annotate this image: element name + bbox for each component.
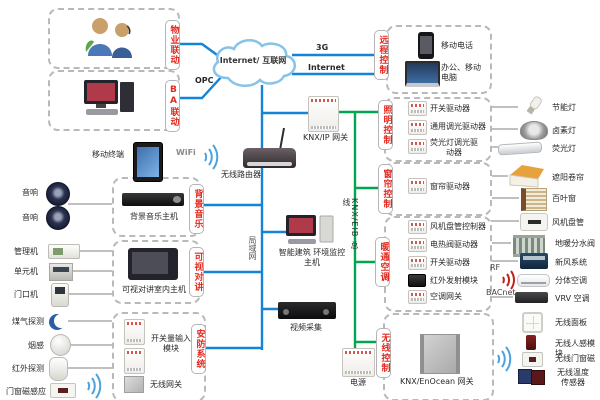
speaker-icon-2 [46,206,70,230]
router-label: 无线路由器 [221,170,261,180]
valve-driver-icon [408,238,427,252]
intercom-tab: 可视对讲 [189,247,204,297]
blinds-icon [521,188,547,211]
tablet-icon [133,142,163,182]
smart-building-knx-diagram: Internet/ 互联网 3G Internet OPC WiFi 局域网 K… [0,0,600,400]
wireless-gw-label: 无线网关 [150,380,182,390]
dimmer-driver-icon [408,120,427,135]
cfl-bulb-icon [519,94,547,120]
mobile-phone-icon [418,32,434,59]
gas-detector-icon [48,312,68,332]
property-linkage-tab: 物业联动 [165,20,180,70]
knx-ip-gateway-label: KNX/IP 网关 [303,133,348,143]
intercom-host-label: 可视对讲室内主机 [114,285,194,295]
speaker-icon-1 [46,182,70,206]
fancoil-controller-label: 风机盘管控制器 [430,222,486,232]
rf-arcs-icon [500,269,516,291]
door-label: 门口机 [14,290,38,300]
wifi-arcs-icon [201,143,219,171]
wireless-panel-icon [522,312,543,333]
lighting-tab: 照明控制 [378,100,393,150]
halogen-label: 卤素灯 [552,126,576,136]
fluorescent-label: 荧光灯 [552,144,576,154]
security-tab: 安防系统 [191,324,206,374]
ir-detector-icon [49,357,68,381]
enocean-gateway-label: KNX/EnOcean 网关 [400,377,474,387]
valve-driver-label: 电热阀驱动器 [430,240,478,250]
ba-computer-icon [78,76,142,122]
input-module-icon-2 [124,348,145,374]
fluorescent-driver-icon [408,139,427,154]
vrv-icon [515,292,548,303]
video-capture-icon [278,302,336,319]
blinds-label: 百叶窗 [552,194,576,204]
knx-ip-gateway-icon [308,96,339,132]
ac-gateway-label: 空调网关 [430,292,462,302]
wireless-magnet-label: 无线门窗磁 [555,354,595,364]
laptop-icon [405,61,440,87]
fancoil-controller-icon [408,220,427,234]
ir-emitter-label: 红外发射模块 [430,276,478,286]
background-music-box [112,177,201,237]
manifold-label: 地暖分水阀 [555,239,595,249]
wireless-control-tab: 无线控制 [376,328,391,378]
unit-icon [49,263,73,281]
magnet-label: 门窗磁感应 [0,387,46,397]
fluorescent-driver-label: 荧光灯调光驱动器 [430,138,478,157]
wireless-panel-label: 无线面板 [555,318,587,328]
fancoil-icon [520,213,548,231]
switch-driver-label: 开关驱动器 [430,104,470,114]
background-music-tab: 背景音乐 [189,184,204,234]
wire-label-wifi: WiFi [176,148,196,158]
awning-label: 遮阳卷帘 [552,173,584,183]
ir-label: 红外探测 [0,364,44,374]
wire-label-internet: Internet [308,63,345,73]
wireless-temp-icon [518,369,532,384]
mobile-terminal-label: 移动终端 [92,150,124,160]
wire-label-lan: 局域网 [248,236,256,260]
smoke-sensor-icon [50,334,71,356]
input-module-label: 开关量输入模块 [150,334,192,353]
door-icon [51,283,69,307]
intercom-host-icon [128,248,178,280]
curtain-driver-icon [408,178,427,194]
ir-emitter-icon [408,274,426,287]
music-host-icon [122,193,184,206]
wireless-magnet-icon [522,352,543,367]
wire-label-opc: OPC [195,76,214,86]
cfl-label: 节能灯 [552,103,576,113]
ac-gateway-icon [408,290,427,304]
switch-driver-icon [408,101,427,116]
wireless-gw-icon [124,376,144,393]
split-ac-label: 分体空调 [555,276,587,286]
power-supply-label: 电源 [350,378,366,388]
wire-label-3g: 3G [316,43,328,53]
video-capture-label: 视频采集 [290,323,322,333]
remote-control-tab: 远程控制 [374,30,389,80]
wire-label-knx-bus: KNX/EIB 总线 [342,198,358,250]
power-supply-icon [342,348,375,377]
ba-linkage-tab: BA联动 [165,80,180,132]
vrv-label: VRV 空调 [555,294,590,304]
router-antenna [280,128,284,150]
cloud-label: Internet/ 互联网 [218,56,288,66]
music-host-label: 背景音乐主机 [118,212,190,222]
wireless-router-icon [243,148,296,168]
enocean-gateway-icon [420,334,460,374]
freshair-label: 新风系统 [555,258,587,268]
security-wifi-arcs-icon [84,372,102,400]
dimmer-driver-label: 通用调光驱动器 [430,122,486,132]
people-icon [84,14,136,60]
magnet-sensor-icon [50,383,76,398]
hvac-switch-driver-label: 开关驱动器 [430,258,470,268]
wire-label-rf: RF [490,263,500,273]
awning-icon [508,163,546,189]
freshair-icon [520,253,548,269]
hvac-tab: 暖通空调 [375,237,390,287]
curtain-tab: 窗帘控制 [378,164,393,214]
enocean-wifi-arcs-icon [494,345,512,373]
speaker-label-2: 音响 [22,213,38,223]
gas-label: 煤气探测 [0,317,44,327]
building-host-icon [284,213,340,247]
mobile-phone-label: 移动电话 [441,41,473,51]
fancoil-label: 风机盘管 [552,218,584,228]
computer-label: 办公、移动电脑 [441,63,485,82]
smoke-label: 烟感 [0,341,44,351]
building-host-label: 智能建筑 环境监控主机 [278,248,346,267]
mgmt-icon [48,244,80,259]
speaker-label-1: 音响 [22,188,38,198]
input-module-icon-1 [124,319,145,345]
unit-label: 单元机 [14,267,38,277]
hvac-switch-driver-icon [408,256,427,270]
wireless-temp-label: 无线温度传感器 [555,368,591,387]
halogen-icon [520,121,548,140]
mgmt-label: 管理机 [14,247,38,257]
split-ac-icon [517,274,550,287]
wireless-pir-icon [526,335,536,350]
curtain-driver-label: 窗帘驱动器 [430,182,470,192]
